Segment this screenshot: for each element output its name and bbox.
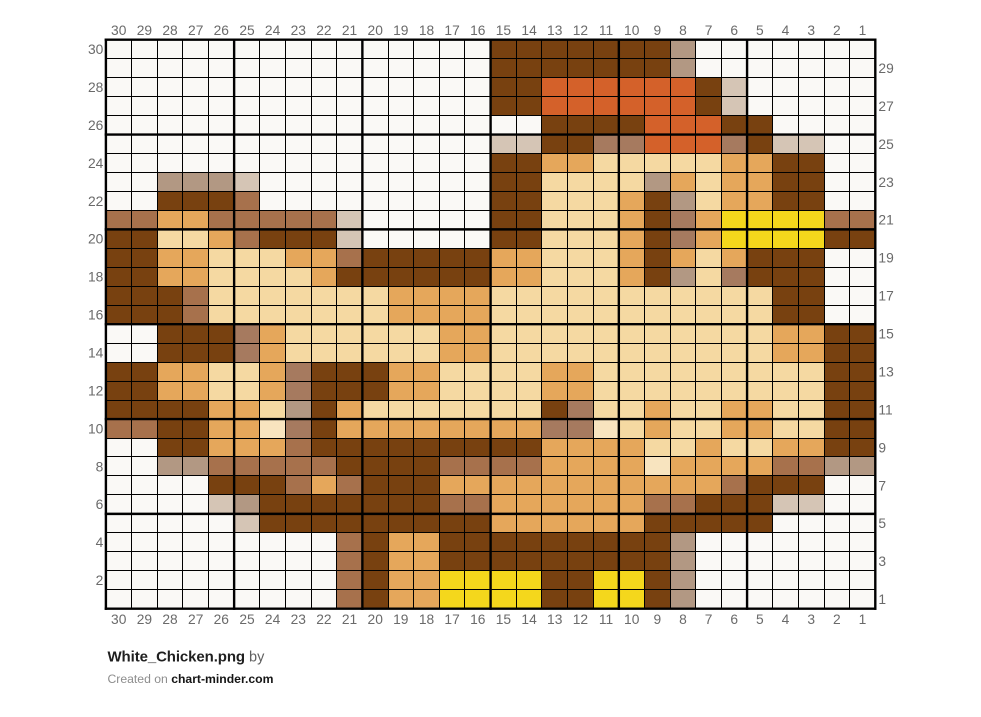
svg-text:4: 4 [96,535,104,550]
svg-text:3: 3 [807,23,815,38]
svg-text:14: 14 [88,346,104,361]
svg-text:13: 13 [878,365,894,380]
svg-text:27: 27 [878,99,893,114]
svg-text:19: 19 [393,612,409,627]
svg-text:7: 7 [878,478,886,493]
svg-text:28: 28 [162,612,178,627]
svg-text:17: 17 [444,23,459,38]
svg-text:11: 11 [599,23,613,38]
svg-text:2: 2 [833,23,841,38]
svg-text:10: 10 [624,612,640,627]
svg-text:1: 1 [859,23,867,38]
svg-text:17: 17 [878,289,893,304]
svg-text:Created on chart-minder.com: Created on chart-minder.com [108,672,274,686]
svg-text:23: 23 [291,612,307,627]
svg-text:8: 8 [679,612,687,627]
svg-text:22: 22 [88,194,103,209]
svg-text:14: 14 [521,612,537,627]
svg-text:27: 27 [188,612,203,627]
svg-text:17: 17 [444,612,459,627]
svg-text:11: 11 [599,612,613,627]
svg-text:26: 26 [214,612,230,627]
svg-text:12: 12 [573,23,588,38]
svg-text:1: 1 [859,612,867,627]
svg-text:16: 16 [470,612,486,627]
svg-text:19: 19 [393,23,409,38]
svg-text:21: 21 [878,213,893,228]
svg-text:24: 24 [265,23,281,38]
svg-text:2: 2 [96,573,104,588]
svg-text:15: 15 [878,327,894,342]
svg-text:5: 5 [756,23,764,38]
svg-text:8: 8 [96,459,104,474]
svg-text:18: 18 [419,612,435,627]
svg-text:16: 16 [470,23,486,38]
svg-text:23: 23 [878,175,894,190]
svg-text:29: 29 [878,61,894,76]
svg-text:18: 18 [419,23,435,38]
svg-text:3: 3 [878,554,886,569]
svg-text:29: 29 [137,23,153,38]
svg-text:4: 4 [782,23,790,38]
svg-text:20: 20 [368,612,384,627]
svg-text:30: 30 [111,612,127,627]
svg-text:21: 21 [342,612,357,627]
svg-text:15: 15 [496,612,512,627]
svg-text:10: 10 [88,421,104,436]
svg-text:25: 25 [239,612,255,627]
svg-text:11: 11 [878,402,892,417]
svg-text:5: 5 [756,612,764,627]
svg-text:13: 13 [547,612,563,627]
svg-text:13: 13 [547,23,563,38]
svg-text:15: 15 [496,23,512,38]
svg-text:26: 26 [214,23,230,38]
svg-text:4: 4 [782,612,790,627]
svg-text:9: 9 [653,612,661,627]
svg-text:25: 25 [878,137,894,152]
svg-text:6: 6 [730,23,738,38]
svg-text:30: 30 [111,23,127,38]
svg-text:24: 24 [265,612,281,627]
svg-text:30: 30 [88,42,104,57]
svg-text:20: 20 [88,232,104,247]
svg-text:10: 10 [624,23,640,38]
svg-text:16: 16 [88,308,104,323]
svg-text:6: 6 [96,497,104,512]
svg-text:18: 18 [88,270,104,285]
svg-text:7: 7 [705,23,713,38]
svg-text:12: 12 [88,383,103,398]
svg-text:28: 28 [162,23,178,38]
svg-text:6: 6 [730,612,738,627]
svg-text:28: 28 [88,80,104,95]
svg-text:1: 1 [878,592,886,607]
svg-text:19: 19 [878,251,894,266]
svg-text:25: 25 [239,23,255,38]
svg-text:14: 14 [521,23,537,38]
svg-text:26: 26 [88,118,104,133]
svg-text:2: 2 [833,612,841,627]
svg-text:22: 22 [316,612,331,627]
svg-text:21: 21 [342,23,357,38]
svg-text:7: 7 [705,612,713,627]
svg-text:8: 8 [679,23,687,38]
svg-text:20: 20 [368,23,384,38]
svg-text:9: 9 [653,23,661,38]
svg-text:3: 3 [807,612,815,627]
svg-text:27: 27 [188,23,203,38]
svg-text:23: 23 [291,23,307,38]
svg-text:White_Chicken.png by: White_Chicken.png by [108,648,266,665]
svg-text:22: 22 [316,23,331,38]
svg-text:9: 9 [878,440,886,455]
svg-text:12: 12 [573,612,588,627]
svg-text:5: 5 [878,516,886,531]
svg-text:24: 24 [88,156,104,171]
svg-text:29: 29 [137,612,153,627]
